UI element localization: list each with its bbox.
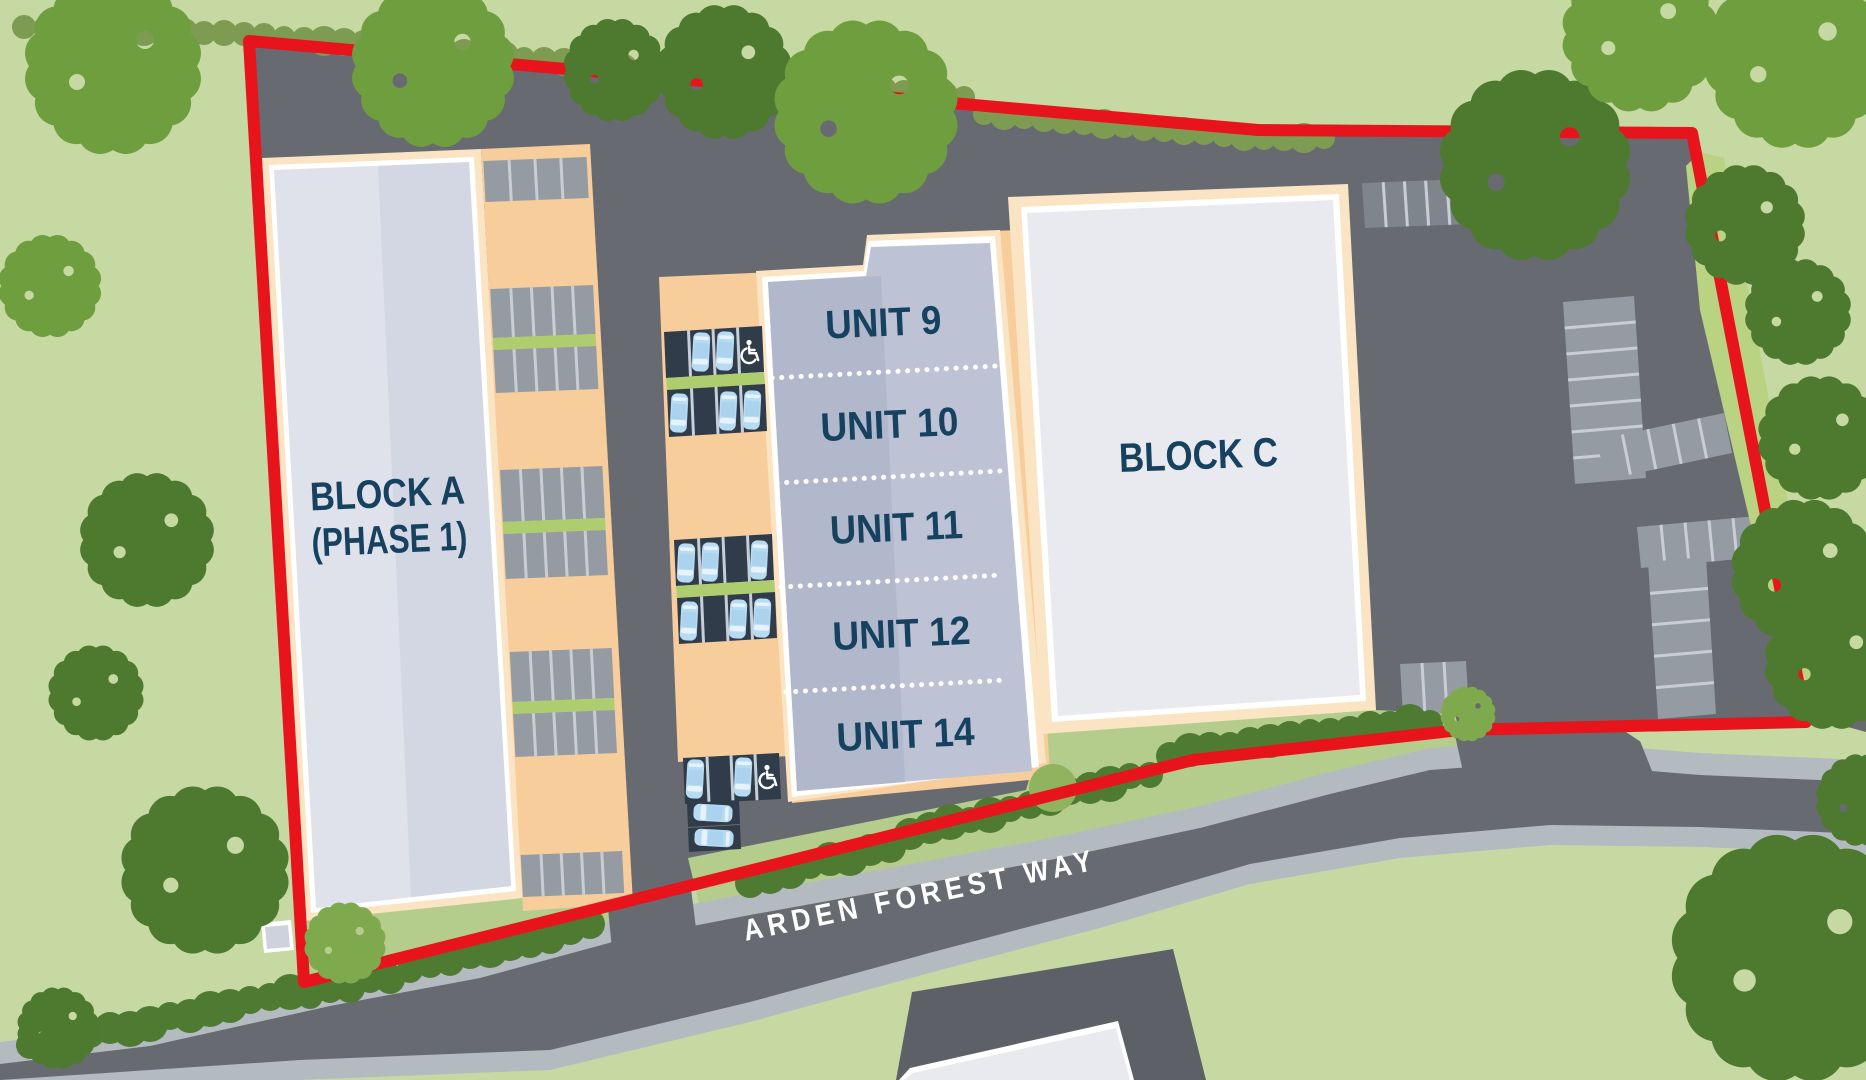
svg-text:(PHASE 1): (PHASE 1) [310, 514, 468, 565]
svg-text:UNIT 14: UNIT 14 [835, 710, 976, 760]
svg-text:UNIT 11: UNIT 11 [829, 503, 964, 553]
svg-text:BLOCK A: BLOCK A [309, 469, 466, 520]
svg-text:UNIT 12: UNIT 12 [831, 609, 971, 659]
svg-text:BLOCK C: BLOCK C [1118, 429, 1279, 481]
svg-text:UNIT 10: UNIT 10 [819, 400, 959, 450]
svg-text:UNIT 9: UNIT 9 [824, 298, 942, 347]
